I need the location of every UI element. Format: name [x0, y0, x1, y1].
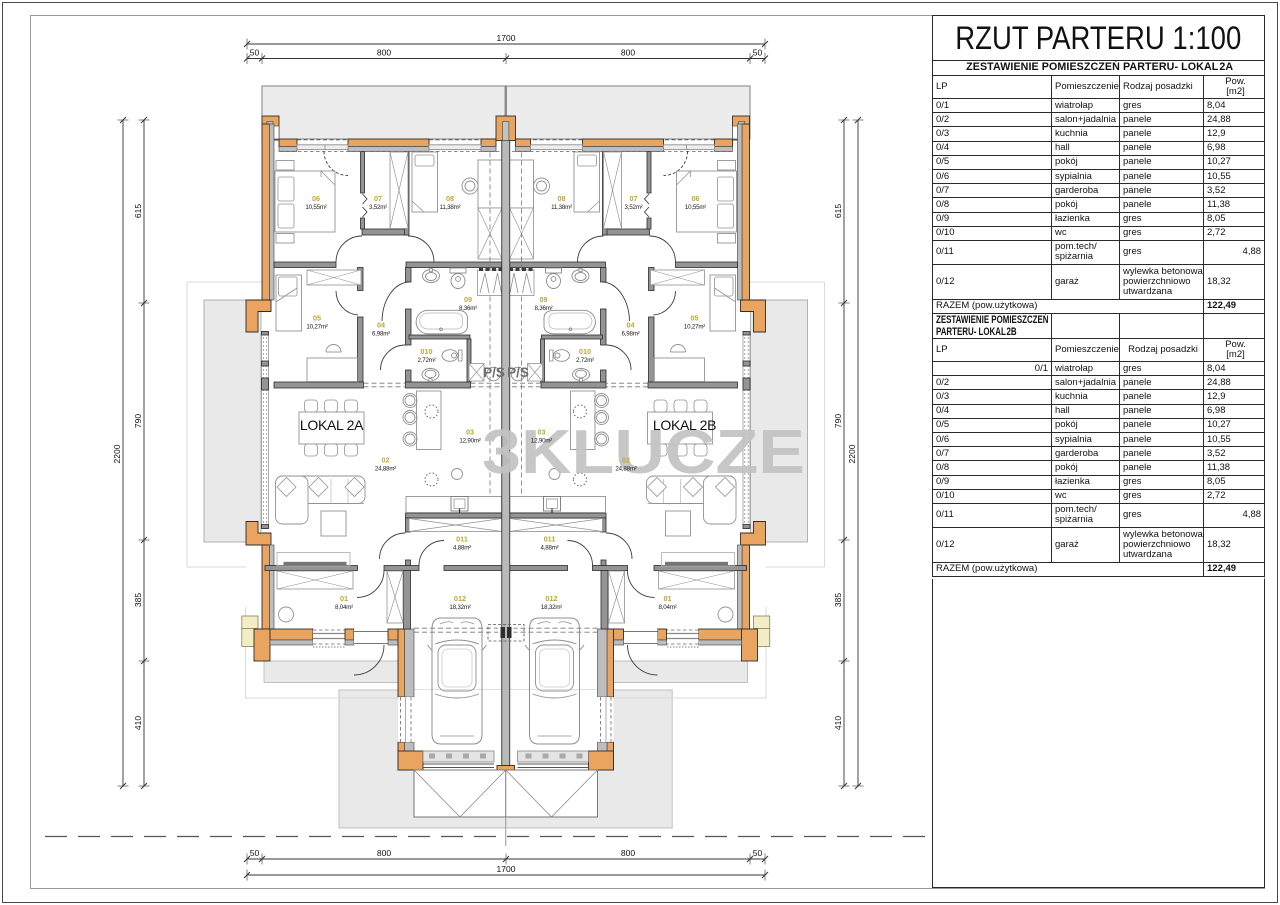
svg-text:06: 06: [312, 194, 320, 203]
svg-text:6,98m²: 6,98m²: [621, 330, 639, 337]
svg-text:800: 800: [377, 47, 391, 57]
svg-text:800: 800: [621, 47, 635, 57]
svg-text:3KLUCZE: 3KLUCZE: [482, 418, 805, 487]
svg-text:4,88m²: 4,88m²: [540, 544, 558, 551]
svg-text:03: 03: [537, 428, 545, 437]
svg-text:010: 010: [420, 347, 432, 356]
svg-text:50: 50: [753, 848, 763, 858]
svg-text:8,36m²: 8,36m²: [534, 305, 552, 312]
svg-text:07: 07: [629, 194, 637, 203]
svg-text:12,90m²: 12,90m²: [531, 437, 552, 444]
svg-text:09: 09: [464, 295, 472, 304]
svg-text:01: 01: [340, 594, 348, 603]
svg-text:P/S: P/S: [483, 365, 505, 380]
svg-text:09: 09: [539, 295, 547, 304]
svg-text:2,72m²: 2,72m²: [417, 357, 435, 364]
svg-text:3,52m²: 3,52m²: [369, 204, 387, 211]
svg-text:10,55m²: 10,55m²: [685, 204, 706, 211]
svg-text:02: 02: [622, 456, 630, 465]
svg-text:50: 50: [250, 47, 260, 57]
svg-text:07: 07: [374, 194, 382, 203]
svg-text:8,36m²: 8,36m²: [459, 305, 477, 312]
svg-text:385: 385: [833, 593, 843, 607]
svg-text:011: 011: [544, 535, 556, 544]
svg-text:011: 011: [456, 535, 468, 544]
svg-text:12,90m²: 12,90m²: [459, 437, 480, 444]
svg-text:04: 04: [377, 321, 386, 330]
svg-text:05: 05: [313, 314, 321, 323]
svg-text:01: 01: [663, 594, 671, 603]
svg-text:03: 03: [466, 428, 474, 437]
svg-text:1700: 1700: [497, 864, 516, 874]
svg-text:04: 04: [626, 321, 635, 330]
svg-text:6,98m²: 6,98m²: [372, 330, 390, 337]
svg-text:P/S: P/S: [507, 365, 529, 380]
svg-text:790: 790: [133, 414, 143, 428]
svg-text:8,04m²: 8,04m²: [335, 604, 353, 611]
svg-text:06: 06: [691, 194, 699, 203]
svg-text:08: 08: [557, 194, 565, 203]
svg-text:50: 50: [250, 848, 260, 858]
svg-text:24,88m²: 24,88m²: [375, 465, 396, 472]
svg-text:02: 02: [381, 456, 389, 465]
svg-text:410: 410: [833, 716, 843, 730]
svg-text:012: 012: [454, 594, 466, 603]
svg-text:10,27m²: 10,27m²: [306, 323, 327, 330]
svg-text:LOKAL 2A: LOKAL 2A: [300, 417, 364, 433]
svg-text:790: 790: [833, 414, 843, 428]
svg-text:18,32m²: 18,32m²: [449, 604, 470, 611]
svg-text:24,88m²: 24,88m²: [615, 465, 636, 472]
svg-text:4,88m²: 4,88m²: [453, 544, 471, 551]
svg-text:410: 410: [133, 716, 143, 730]
svg-text:615: 615: [833, 204, 843, 218]
svg-text:800: 800: [377, 848, 391, 858]
svg-text:10,27m²: 10,27m²: [684, 323, 705, 330]
svg-text:8,04m²: 8,04m²: [658, 604, 676, 611]
svg-text:615: 615: [133, 204, 143, 218]
svg-text:1700: 1700: [497, 33, 516, 43]
svg-text:3,52m²: 3,52m²: [624, 204, 642, 211]
svg-text:012: 012: [545, 594, 557, 603]
svg-text:05: 05: [690, 314, 698, 323]
svg-text:385: 385: [133, 593, 143, 607]
svg-text:10,55m²: 10,55m²: [305, 204, 326, 211]
svg-text:11,38m²: 11,38m²: [551, 204, 572, 211]
svg-text:2200: 2200: [847, 444, 857, 463]
svg-text:18,32m²: 18,32m²: [541, 604, 562, 611]
svg-text:010: 010: [579, 347, 591, 356]
svg-text:08: 08: [446, 194, 454, 203]
svg-text:2,72m²: 2,72m²: [576, 357, 594, 364]
svg-text:LOKAL 2B: LOKAL 2B: [653, 417, 716, 433]
svg-text:50: 50: [753, 47, 763, 57]
svg-text:800: 800: [621, 848, 635, 858]
svg-text:11,38m²: 11,38m²: [440, 204, 461, 211]
svg-text:2200: 2200: [112, 444, 122, 463]
